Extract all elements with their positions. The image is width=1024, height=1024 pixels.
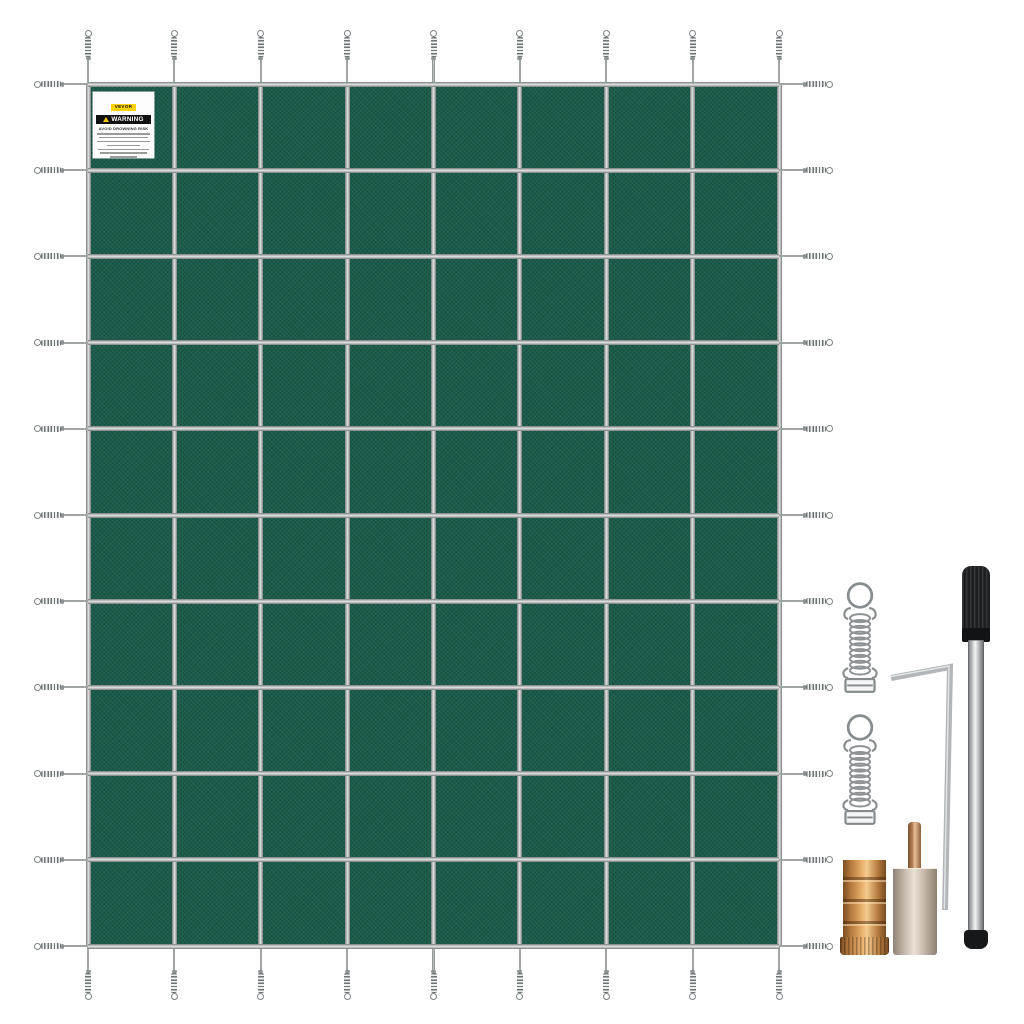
strap-end (692, 60, 694, 84)
strap-end (346, 60, 348, 84)
strap-end (432, 60, 434, 84)
strap-end (605, 60, 607, 84)
coil-spring-icon (171, 973, 177, 993)
coil-spring-icon (806, 684, 826, 690)
spring-ring-icon (826, 167, 833, 174)
strap-spring-tip (34, 511, 88, 519)
spring-ring-icon (34, 943, 41, 950)
spring-ring-icon (826, 512, 833, 519)
warning-title: WARNING (111, 116, 143, 123)
spring-ring-icon (171, 30, 178, 37)
coil-spring-icon (41, 598, 61, 604)
coil-spring-icon (806, 426, 826, 432)
strap-horizontal (88, 857, 779, 862)
fine-print-line (97, 141, 150, 143)
strap-spring-tip (779, 942, 833, 950)
strap-end (779, 600, 803, 602)
strap-spring-tip (257, 30, 265, 84)
strap-spring-tip (602, 30, 610, 84)
strap-end (779, 255, 803, 257)
strap-spring-tip (34, 252, 88, 260)
spring-ring-icon (826, 856, 833, 863)
strap-end (779, 945, 803, 947)
strap-horizontal (88, 82, 779, 87)
spring-ring-icon (826, 81, 833, 88)
spring-ring-icon (826, 770, 833, 777)
spring-ring-icon (34, 167, 41, 174)
spring-ring-icon (34, 425, 41, 432)
stainless-anchor-body (893, 868, 937, 955)
strap-end (692, 946, 694, 970)
strap-end (64, 428, 88, 430)
rod-shaft (968, 640, 984, 934)
coil-spring-icon (806, 943, 826, 949)
strap-end (346, 946, 348, 970)
strap-end (779, 859, 803, 861)
coil-spring-icon (344, 973, 350, 993)
coil-spring-icon (41, 512, 61, 518)
strap-spring-tip (430, 30, 438, 84)
spring-ring-icon (689, 30, 696, 37)
spring-ring-icon (516, 993, 523, 1000)
product-photo: VEVOR WARNING AVOID DROWNING RISK (0, 0, 1024, 1024)
spring-ring-icon (34, 253, 41, 260)
strap-spring-tip (779, 252, 833, 260)
coil-spring-icon (806, 598, 826, 604)
strap-horizontal (88, 771, 779, 776)
strap-end (173, 60, 175, 84)
strap-spring-tip (779, 597, 833, 605)
coil-spring-icon (806, 81, 826, 87)
coil-spring-icon (258, 973, 264, 993)
vevor-logo: VEVOR (111, 104, 137, 111)
warning-subtitle: AVOID DROWNING RISK (96, 126, 151, 131)
strap-end (779, 169, 803, 171)
spring-ring-icon (34, 770, 41, 777)
coil-spring-icon (603, 37, 609, 57)
coil-spring-icon (806, 253, 826, 259)
strap-spring-tip (779, 683, 833, 691)
spring-ring-icon (430, 993, 437, 1000)
strap-end (260, 946, 262, 970)
strap-spring-tip (34, 425, 88, 433)
coil-spring-icon (431, 973, 437, 993)
strap-spring-tip (343, 946, 351, 1000)
strap-spring-tip (775, 946, 783, 1000)
spring-ring-icon (776, 993, 783, 1000)
coil-spring-icon (258, 37, 264, 57)
spring-ring-icon (34, 512, 41, 519)
strap-spring-tip (34, 80, 88, 88)
coil-spring-icon (776, 973, 782, 993)
strap-horizontal (88, 513, 779, 518)
strap-spring-tip (516, 946, 524, 1000)
strap-spring-tip (779, 166, 833, 174)
brass-anchor (843, 860, 886, 955)
fine-print-line (97, 133, 150, 135)
strap-horizontal (88, 685, 779, 690)
coil-spring-icon (41, 167, 61, 173)
brass-anchor-knurled-base (840, 937, 889, 955)
coil-spring-icon (431, 37, 437, 57)
strap-end (779, 428, 803, 430)
strap-spring-tip (34, 942, 88, 950)
strap-spring-tip (779, 770, 833, 778)
strap-end (64, 83, 88, 85)
strap-horizontal (88, 599, 779, 604)
strap-spring-tip (689, 30, 697, 84)
spring-ring-icon (516, 30, 523, 37)
strap-end (432, 946, 434, 970)
strap-end (779, 342, 803, 344)
spring-ring-icon (34, 81, 41, 88)
anchor-center-pin (908, 822, 921, 870)
strap-spring-tip (34, 597, 88, 605)
strap-end (779, 773, 803, 775)
warning-banner: WARNING (96, 115, 151, 125)
strap-spring-tip (779, 511, 833, 519)
coil-spring-icon (41, 857, 61, 863)
spring-ring-icon (344, 30, 351, 37)
strap-spring-tip (602, 946, 610, 1000)
coil-spring-icon (517, 973, 523, 993)
spring-ring-icon (34, 856, 41, 863)
strap-end (64, 686, 88, 688)
fine-print-line (99, 137, 149, 139)
warning-label: VEVOR WARNING AVOID DROWNING RISK (93, 92, 154, 158)
strap-end (64, 600, 88, 602)
spring-ring-icon (776, 30, 783, 37)
strap-horizontal (88, 340, 779, 345)
spring-ring-icon (603, 993, 610, 1000)
strap-spring-tip (34, 166, 88, 174)
coil-spring-icon (776, 37, 782, 57)
tension-spring-icon (840, 576, 880, 704)
strap-spring-tip (34, 856, 88, 864)
spring-ring-icon (85, 993, 92, 1000)
rod-end-cap (964, 930, 988, 949)
coil-spring-icon (41, 684, 61, 690)
spring-ring-icon (257, 30, 264, 37)
strap-spring-tip (84, 946, 92, 1000)
coil-spring-icon (806, 857, 826, 863)
coil-spring-icon (806, 512, 826, 518)
coil-spring-icon (41, 426, 61, 432)
strap-horizontal (88, 426, 779, 431)
stainless-anchor (893, 868, 937, 955)
strap-spring-tip (170, 30, 178, 84)
strap-end (64, 169, 88, 171)
strap-spring-tip (779, 80, 833, 88)
coil-spring-icon (41, 943, 61, 949)
coil-spring-icon (85, 973, 91, 993)
spring-ring-icon (689, 993, 696, 1000)
fine-print-line (107, 145, 140, 147)
strap-end (779, 686, 803, 688)
coil-spring-icon (41, 253, 61, 259)
installation-rod (961, 566, 991, 952)
spring-ring-icon (34, 339, 41, 346)
strap-spring-tip (84, 30, 92, 84)
spring-ring-icon (430, 30, 437, 37)
coil-spring-icon (344, 37, 350, 57)
strap-end (64, 945, 88, 947)
strap-end (173, 946, 175, 970)
spring-ring-icon (826, 943, 833, 950)
coil-spring-icon (806, 167, 826, 173)
spring-ring-icon (826, 339, 833, 346)
strap-end (519, 946, 521, 970)
coil-spring-icon (517, 37, 523, 57)
coil-spring-icon (806, 771, 826, 777)
strap-spring-tip (516, 30, 524, 84)
strap-end (64, 773, 88, 775)
spring-ring-icon (257, 993, 264, 1000)
strap-end (779, 514, 803, 516)
strap-horizontal (88, 168, 779, 173)
spring-ring-icon (826, 253, 833, 260)
spring-ring-icon (34, 598, 41, 605)
strap-end (779, 83, 803, 85)
fine-print-line (98, 149, 149, 151)
coil-spring-icon (603, 973, 609, 993)
spring-ring-icon (826, 425, 833, 432)
spring-ring-icon (826, 684, 833, 691)
coil-spring-icon (41, 771, 61, 777)
strap-spring-tip (689, 946, 697, 1000)
strap-spring-tip (779, 339, 833, 347)
strap-spring-tip (34, 339, 88, 347)
strap-end (64, 342, 88, 344)
strap-spring-tip (34, 683, 88, 691)
strap-horizontal (88, 944, 779, 949)
strap-spring-tip (170, 946, 178, 1000)
strap-spring-tip (34, 770, 88, 778)
strap-end (260, 60, 262, 84)
strap-spring-tip (779, 425, 833, 433)
spring-ring-icon (826, 598, 833, 605)
coil-spring-icon (41, 81, 61, 87)
coil-spring-icon (806, 340, 826, 346)
strap-spring-tip (775, 30, 783, 84)
strap-spring-tip (430, 946, 438, 1000)
strap-spring-tip (257, 946, 265, 1000)
strap-end (605, 946, 607, 970)
strap-spring-tip (779, 856, 833, 864)
tension-spring-icon (840, 708, 880, 836)
fine-print-line (110, 156, 138, 158)
strap-spring-tip (343, 30, 351, 84)
strap-end (64, 859, 88, 861)
spring-ring-icon (344, 993, 351, 1000)
spring-ring-icon (34, 684, 41, 691)
brass-anchor-body (843, 860, 886, 937)
fine-print-text (96, 133, 151, 158)
strap-end (64, 514, 88, 516)
fine-print-line (100, 152, 147, 154)
strap-end (519, 60, 521, 84)
spring-ring-icon (171, 993, 178, 1000)
coil-spring-icon (171, 37, 177, 57)
strap-end (64, 255, 88, 257)
coil-spring-icon (690, 973, 696, 993)
spring-ring-icon (603, 30, 610, 37)
coil-spring-icon (41, 340, 61, 346)
spring-ring-icon (85, 30, 92, 37)
coil-spring-icon (690, 37, 696, 57)
warning-triangle-icon (103, 117, 109, 122)
coil-spring-icon (85, 37, 91, 57)
strap-horizontal (88, 254, 779, 259)
